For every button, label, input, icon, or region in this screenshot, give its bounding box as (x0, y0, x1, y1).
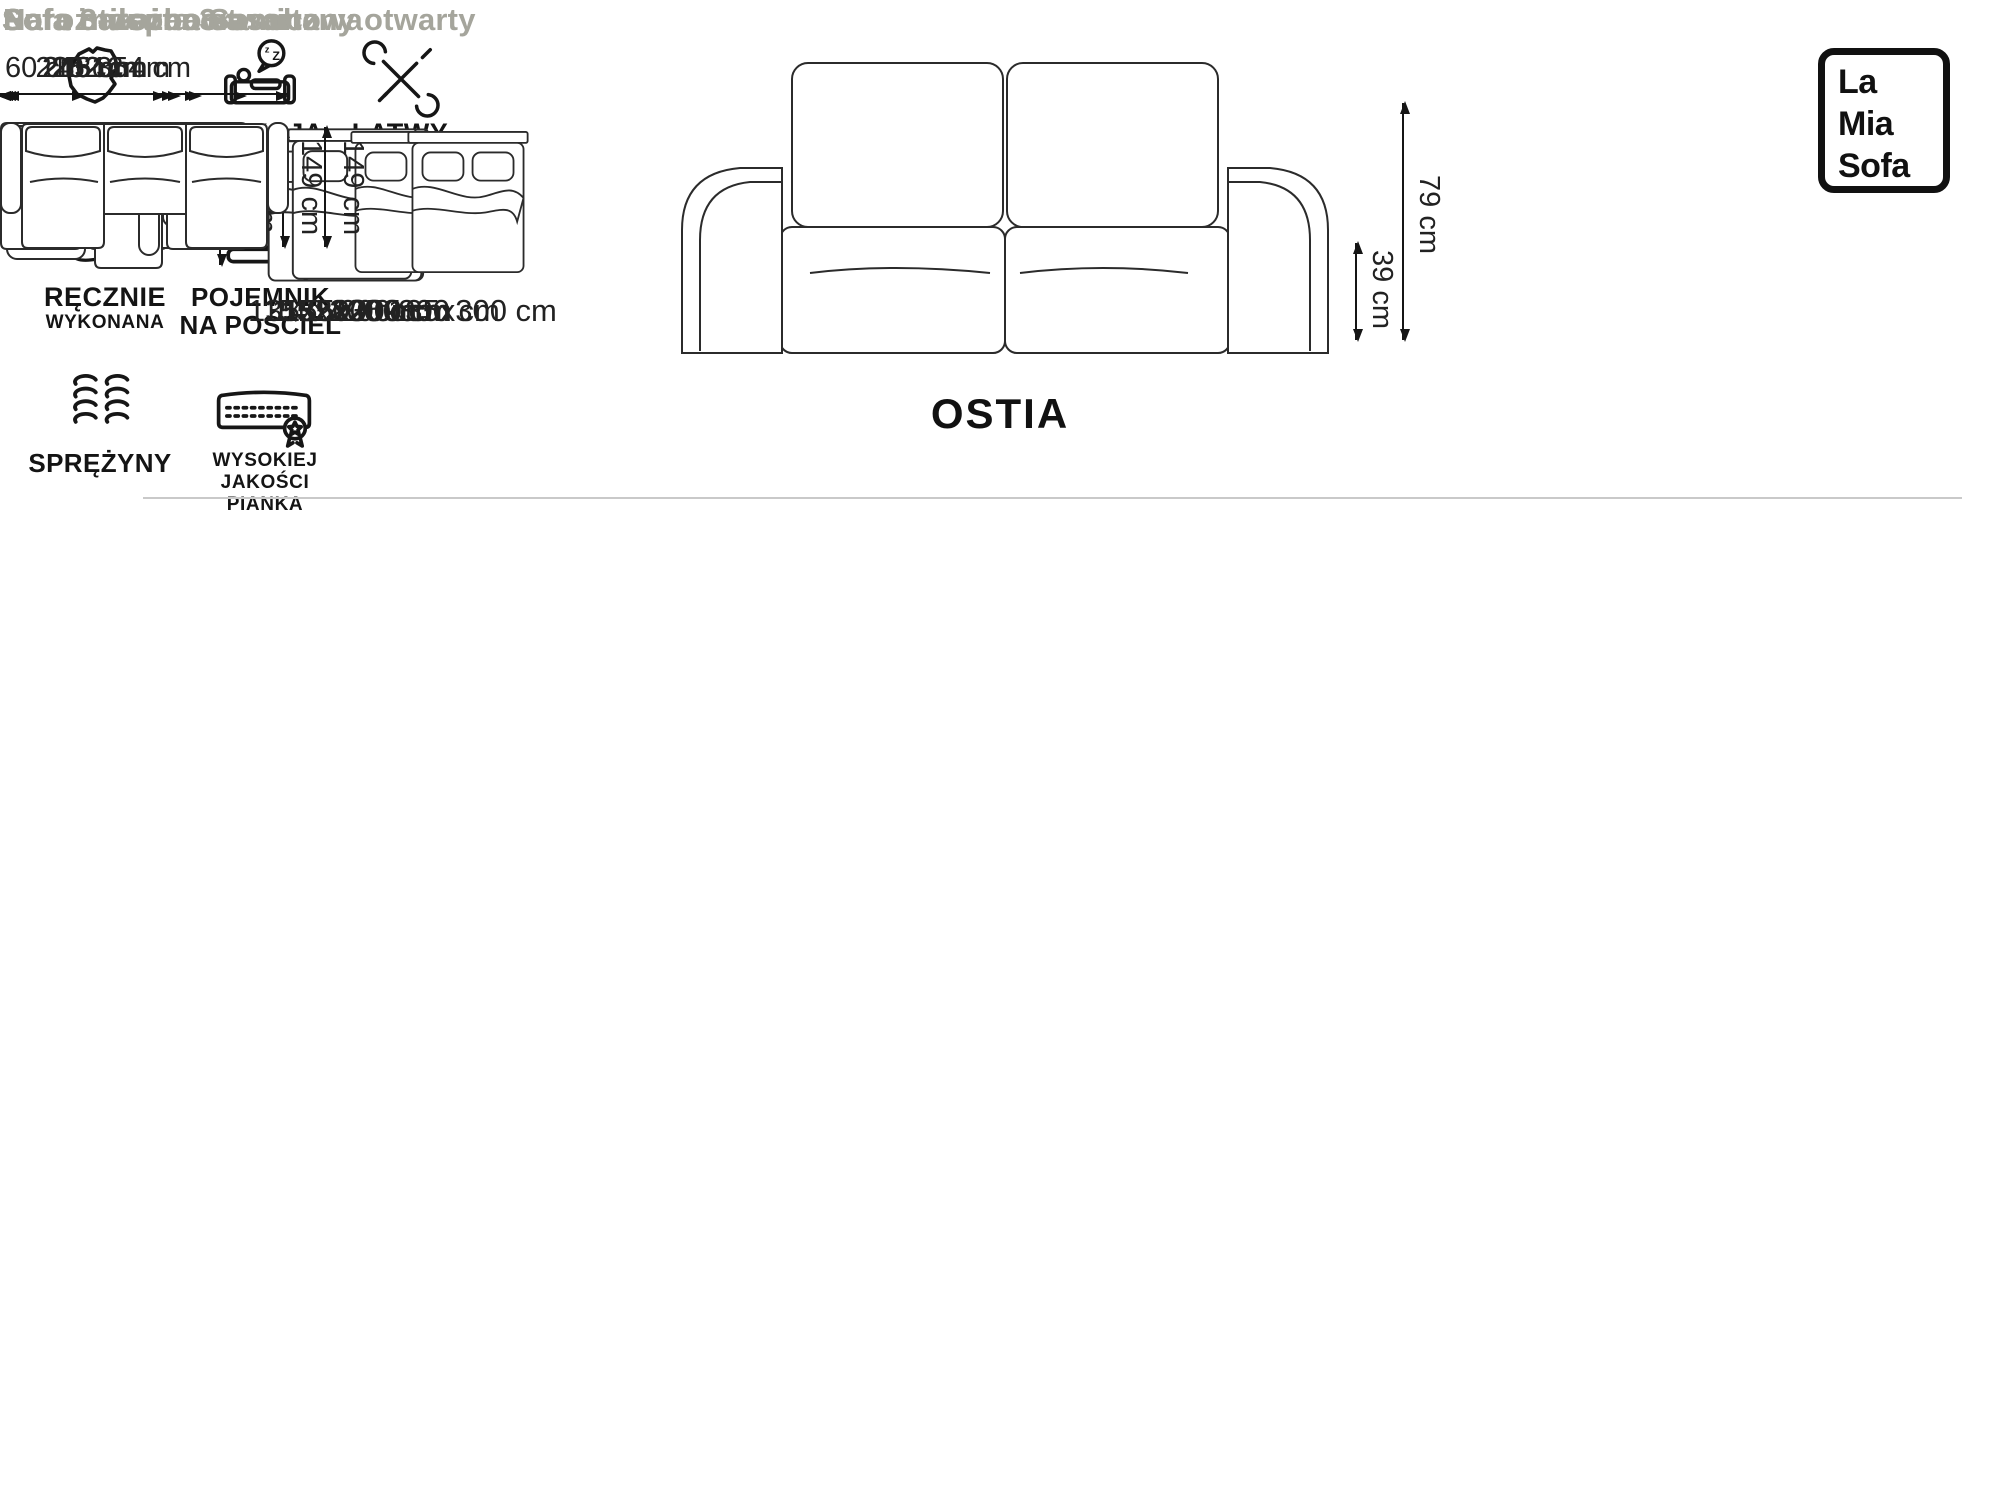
bed-size: 135x300 cm (388, 293, 549, 329)
feature-label: WYSOKIEJ (185, 450, 345, 472)
panoramic-sofa-top-view (0, 122, 289, 250)
seat-height-dimension: 39 cm (1365, 250, 1398, 329)
logo-line-1: La (1838, 61, 1943, 103)
logo-line-2: Mia (1838, 103, 1943, 145)
config-title: Narożnik panoramiczny (3, 2, 355, 38)
seat-height-arrow (1355, 243, 1357, 340)
depth-dimension: 149 cm (336, 140, 369, 235)
brand-logo: La Mia Sofa (1818, 48, 1950, 193)
feature-sublabel: JAKOŚCI PIANKA (185, 472, 345, 516)
feature-label: SPRĘŻYNY (25, 448, 175, 479)
config-card: Sofa narożna 252 cm 149 cm 135x200 cm (0, 1005, 470, 1340)
depth-dimension: 149 cm (294, 140, 327, 235)
config-card: Sofa narożna otwarta 210 cm 149 cm 135x2… (0, 670, 460, 1005)
foam-icon (198, 382, 330, 448)
springs-icon (62, 370, 140, 440)
logo-line-3: Sofa (1838, 145, 1943, 187)
feature-label: RĘCZNIE (30, 282, 180, 313)
depth-arrow (324, 127, 326, 247)
width-dimension: 354 cm (0, 52, 287, 85)
product-name: OSTIA (880, 390, 1120, 438)
divider (143, 497, 1962, 499)
feature-sublabel: WYKONANA (30, 312, 180, 334)
config-card: Pufa 60 cm 100 cm (0, 1340, 220, 1500)
sofa-front-drawing (660, 55, 1350, 360)
height-dimension: 79 cm (1412, 175, 1445, 254)
height-arrow (1402, 103, 1404, 340)
easy-assembly-icon (362, 40, 440, 118)
width-arrow (0, 93, 287, 95)
bed-top-view (407, 125, 529, 280)
spec-sheet: POLSKA PRODUKCJA z Z FUNKCJA SPANIA ŁATW… (0, 0, 2000, 1500)
